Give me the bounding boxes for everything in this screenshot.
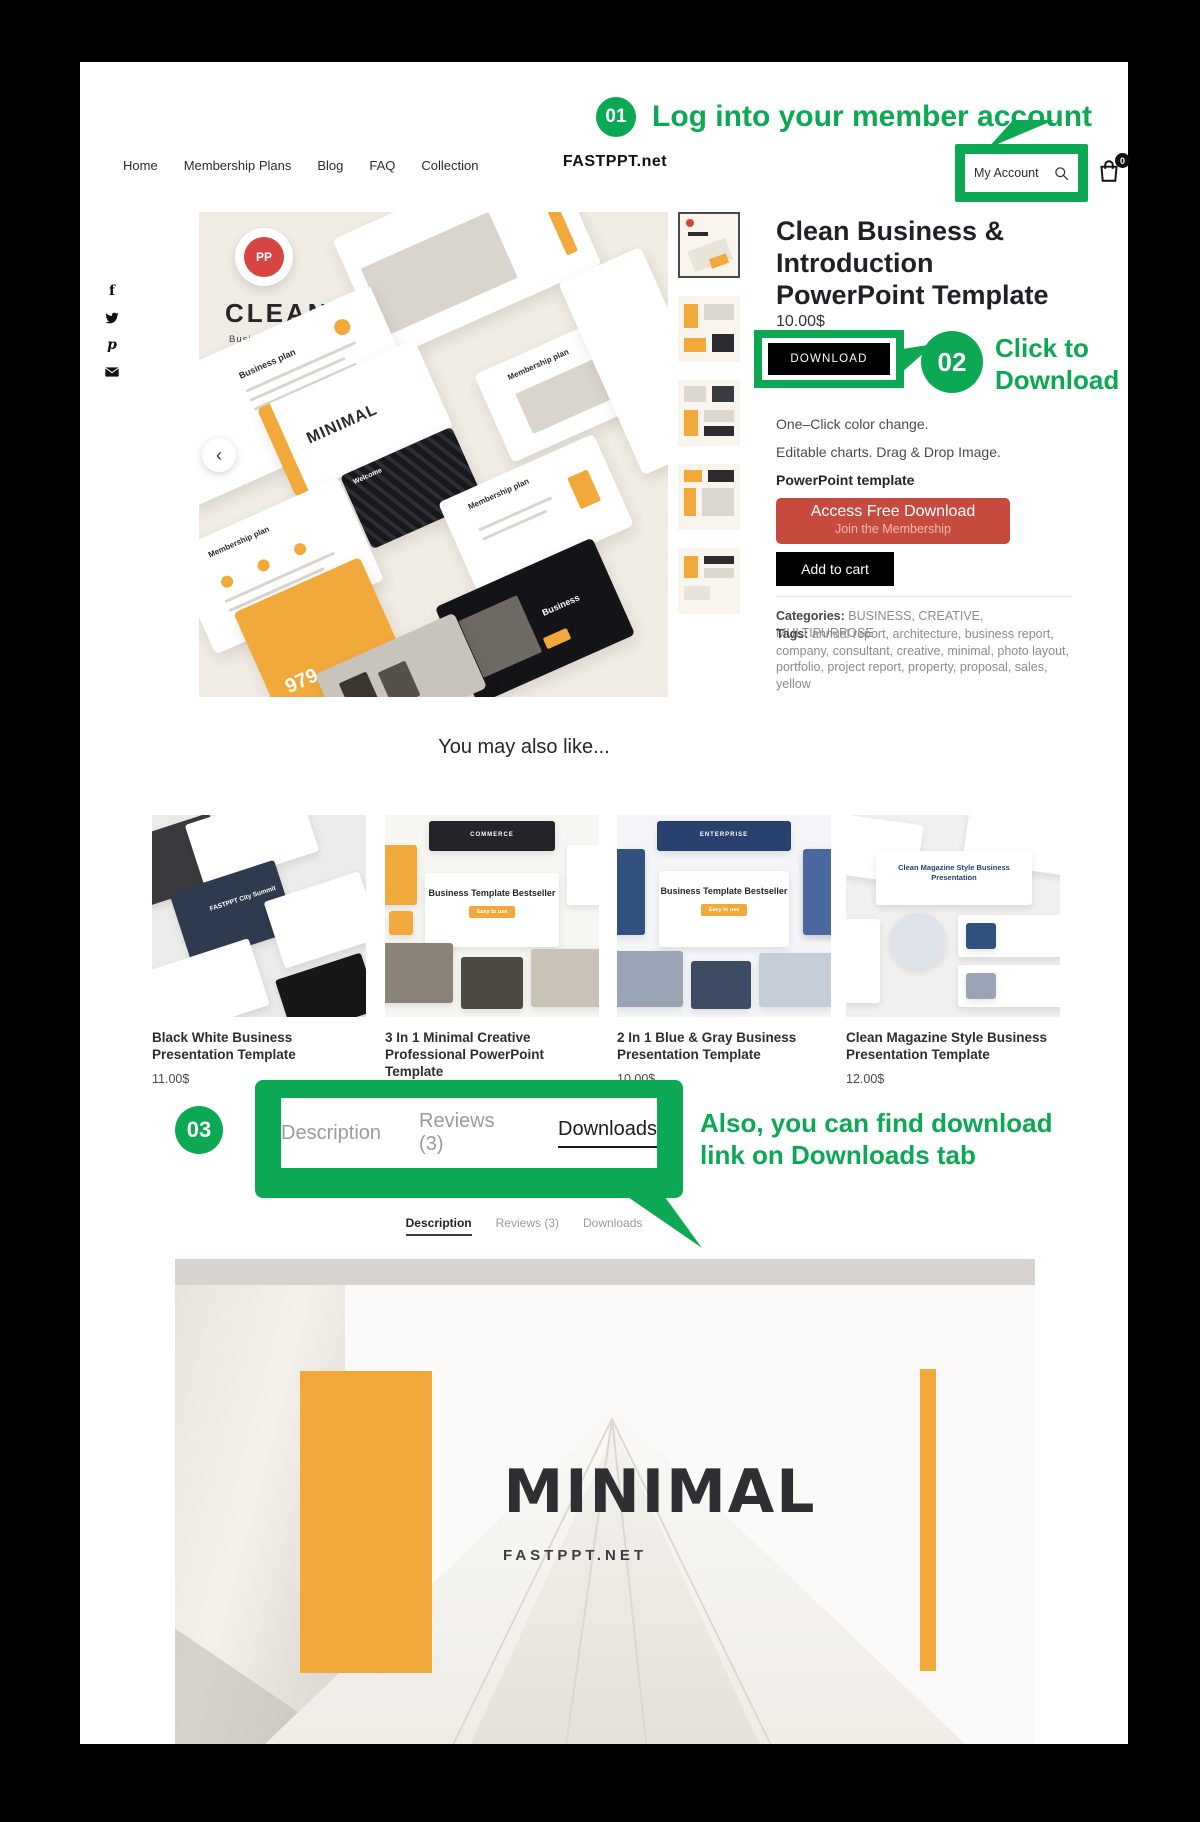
site-logo[interactable]: FASTPPT.net [515, 153, 715, 171]
product-tab-bar: Description Reviews (3) Downloads [0, 1216, 1048, 1236]
related-card-4-image[interactable]: Clean Magazine Style Business Presentati… [846, 815, 1060, 1017]
description-preview-image: MINIMAL FASTPPT.NET [175, 1259, 1035, 1744]
product-tags[interactable]: Tags: annual report, architecture, busin… [776, 626, 1072, 692]
cart-button[interactable]: 0 [1096, 158, 1126, 188]
related-card-4-title[interactable]: Clean Magazine Style Business Presentati… [846, 1029, 1060, 1063]
product-feature: Editable charts. Drag & Drop Image. [776, 444, 1001, 460]
related-card-1[interactable]: FASTPPT City Summit Black White Business… [152, 815, 366, 1086]
annotation-highlight-tabs: Description Reviews (3) Downloads [255, 1080, 683, 1198]
tab-downloads[interactable]: Downloads [583, 1216, 642, 1236]
related-card-1-title[interactable]: Black White Business Presentation Templa… [152, 1029, 366, 1063]
nav-faq[interactable]: FAQ [369, 158, 395, 173]
preview-yellow-block [300, 1371, 432, 1673]
pinterest-icon[interactable]: p [104, 337, 120, 353]
product-title: Clean Business & Introduction PowerPoint… [776, 215, 1086, 311]
email-icon[interactable] [104, 364, 120, 380]
gallery-thumbnail-5[interactable] [678, 548, 740, 614]
related-card-2-image[interactable]: COMMERCE Business Template Bestseller Ea… [385, 815, 599, 1017]
tags-label: Tags: [776, 627, 808, 641]
gallery-thumbnail-1[interactable] [678, 212, 740, 278]
product-feature: One–Click color change. [776, 416, 929, 432]
gallery-thumbnail-3[interactable] [678, 380, 740, 446]
annotation-highlight-download: DOWNLOAD [754, 330, 904, 388]
gallery-prev-button[interactable]: ‹ [202, 438, 236, 472]
preview-subtitle: FASTPPT.NET [503, 1547, 647, 1564]
nav-membership-plans[interactable]: Membership Plans [184, 158, 292, 173]
gallery-thumbnail-4[interactable] [678, 464, 740, 530]
product-format: PowerPoint template [776, 472, 914, 488]
related-card-2-title[interactable]: 3 In 1 Minimal Creative Professional Pow… [385, 1029, 599, 1080]
categories-label: Categories: [776, 609, 845, 623]
product-gallery-image: PP CLEAN Business Template Business plan… [199, 212, 668, 697]
related-card-3-image[interactable]: ENTERPRISE Business Template Bestseller … [617, 815, 831, 1017]
annotation-step3-text: Also, you can find download link on Down… [700, 1108, 1052, 1171]
search-icon[interactable] [1054, 166, 1069, 181]
preview-headline: MINIMAL [495, 1457, 825, 1527]
zoomed-tab-downloads[interactable]: Downloads [558, 1118, 657, 1148]
related-card-3[interactable]: ENTERPRISE Business Template Bestseller … [617, 815, 831, 1086]
tags-links[interactable]: annual report, architecture, business re… [776, 627, 1069, 691]
related-card-1-image[interactable]: FASTPPT City Summit [152, 815, 366, 1017]
annotation-highlight-account: My Account [955, 144, 1088, 202]
zoomed-tab-reviews[interactable]: Reviews (3) [419, 1110, 520, 1156]
main-nav: Home Membership Plans Blog FAQ Collectio… [123, 158, 478, 173]
step-badge-02: 02 [921, 331, 983, 393]
powerpoint-logo-circle: PP [235, 228, 293, 286]
screenshot-canvas: Home Membership Plans Blog FAQ Collectio… [0, 0, 1200, 1822]
divider [776, 596, 1072, 597]
product-price: 10.00$ [776, 313, 825, 331]
step-badge-03: 03 [175, 1106, 223, 1154]
facebook-icon[interactable]: f [104, 283, 120, 299]
membership-download-button[interactable]: Access Free Download Join the Membership [776, 498, 1010, 544]
download-button[interactable]: DOWNLOAD [768, 343, 890, 375]
powerpoint-logo: PP [244, 237, 284, 277]
cart-count-badge: 0 [1115, 153, 1130, 168]
nav-blog[interactable]: Blog [317, 158, 343, 173]
my-account-label[interactable]: My Account [974, 166, 1039, 180]
related-card-2[interactable]: COMMERCE Business Template Bestseller Ea… [385, 815, 599, 1103]
nav-home[interactable]: Home [123, 158, 158, 173]
related-card-4-price: 12.00$ [846, 1072, 1060, 1086]
membership-button-line1: Access Free Download [776, 503, 1010, 521]
add-to-cart-button[interactable]: Add to cart [776, 552, 894, 586]
twitter-icon[interactable] [104, 310, 120, 326]
membership-button-line2: Join the Membership [776, 522, 1010, 536]
step-badge-01: 01 [596, 97, 636, 137]
annotation-step2-text: Click to Download [995, 333, 1119, 396]
nav-collection[interactable]: Collection [421, 158, 478, 173]
preview-top-strip [175, 1259, 1035, 1285]
related-heading: You may also like... [0, 736, 1048, 759]
preview-yellow-bar [920, 1369, 936, 1671]
social-share-column: f p [104, 283, 120, 380]
zoomed-tab-bar: Description Reviews (3) Downloads [281, 1098, 657, 1168]
related-card-4[interactable]: Clean Magazine Style Business Presentati… [846, 815, 1060, 1086]
my-account-box[interactable]: My Account [965, 154, 1078, 192]
related-card-3-title[interactable]: 2 In 1 Blue & Gray Business Presentation… [617, 1029, 831, 1063]
tab-description[interactable]: Description [406, 1216, 472, 1236]
zoomed-tab-description[interactable]: Description [281, 1122, 381, 1145]
tab-reviews[interactable]: Reviews (3) [496, 1216, 559, 1236]
gallery-thumbnail-2[interactable] [678, 296, 740, 362]
